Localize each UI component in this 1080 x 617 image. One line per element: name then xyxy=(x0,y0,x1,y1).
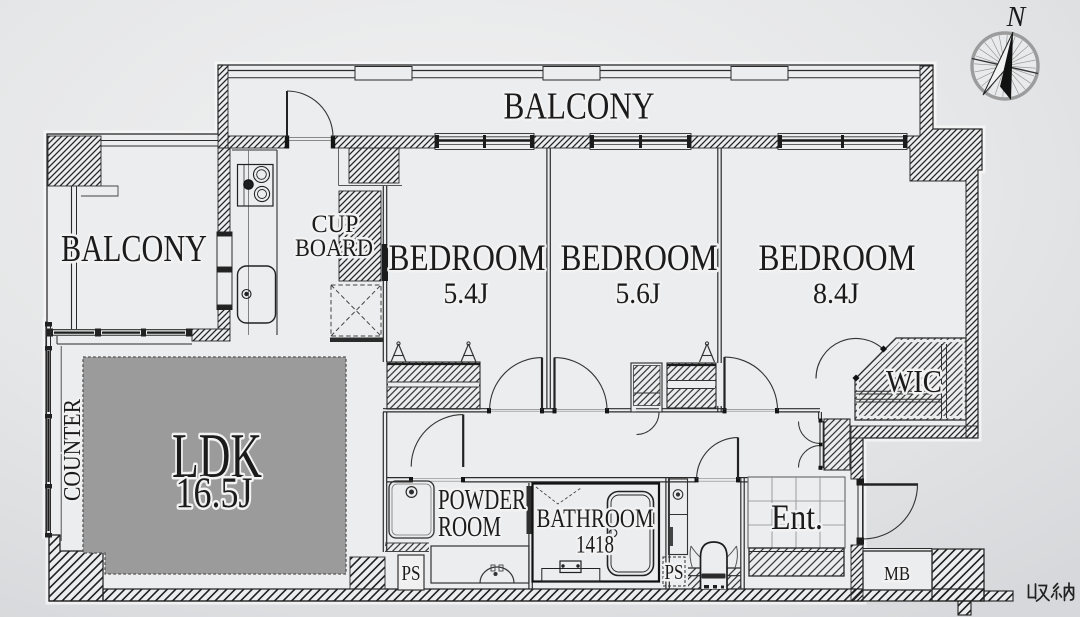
svg-text:BALCONY: BALCONY xyxy=(504,86,655,128)
svg-text:PS: PS xyxy=(665,560,684,584)
svg-text:CUP: CUP xyxy=(312,211,359,238)
svg-text:Ent.: Ent. xyxy=(771,497,823,537)
svg-text:COUNTER: COUNTER xyxy=(60,399,86,501)
svg-text:BOARD: BOARD xyxy=(295,235,373,262)
svg-text:5.4J: 5.4J xyxy=(444,277,489,310)
svg-text:BEDROOM: BEDROOM xyxy=(389,237,546,278)
svg-text:8.4J: 8.4J xyxy=(813,277,859,310)
svg-text:PS: PS xyxy=(402,561,421,585)
svg-text:MB: MB xyxy=(884,563,910,585)
svg-text:BEDROOM: BEDROOM xyxy=(759,237,916,278)
svg-text:ROOM: ROOM xyxy=(438,511,501,543)
svg-text:16.5J: 16.5J xyxy=(176,470,253,517)
svg-text:BALCONY: BALCONY xyxy=(61,228,207,270)
svg-text:1418: 1418 xyxy=(576,530,614,559)
svg-text:BEDROOM: BEDROOM xyxy=(561,237,718,278)
svg-text:N: N xyxy=(1006,2,1027,33)
svg-text:5.6J: 5.6J xyxy=(616,277,661,310)
svg-text:WIC: WIC xyxy=(886,363,942,399)
